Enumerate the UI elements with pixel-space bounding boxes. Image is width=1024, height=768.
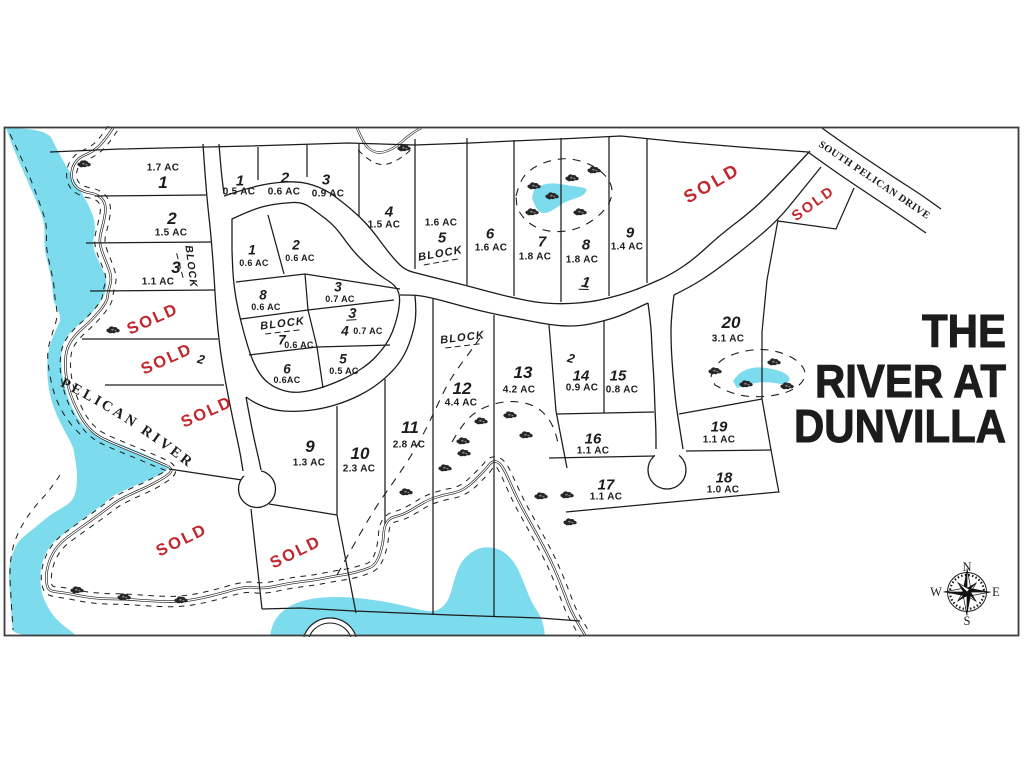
svg-text:1.6 AC: 1.6 AC xyxy=(425,218,458,229)
svg-text:1: 1 xyxy=(248,243,256,258)
svg-text:0.6 AC: 0.6 AC xyxy=(285,253,315,263)
svg-text:1.1 AC: 1.1 AC xyxy=(703,435,736,446)
svg-text:1.6 AC: 1.6 AC xyxy=(475,243,508,254)
svg-text:6: 6 xyxy=(486,225,495,242)
svg-text:8: 8 xyxy=(259,288,267,303)
svg-text:1.3 AC: 1.3 AC xyxy=(293,458,326,469)
svg-text:1: 1 xyxy=(158,173,167,192)
svg-text:4: 4 xyxy=(340,324,349,339)
svg-text:5: 5 xyxy=(339,352,347,367)
svg-text:2: 2 xyxy=(291,238,300,253)
svg-text:W: W xyxy=(930,585,942,599)
svg-text:2.3 AC: 2.3 AC xyxy=(343,464,376,475)
svg-text:1.5 AC: 1.5 AC xyxy=(368,220,401,231)
svg-text:1.1 AC: 1.1 AC xyxy=(577,446,610,457)
svg-text:11: 11 xyxy=(401,418,419,437)
svg-text:0.6 AC: 0.6 AC xyxy=(268,187,301,198)
svg-text:7: 7 xyxy=(538,233,547,250)
svg-text:0.5 AC: 0.5 AC xyxy=(223,187,256,198)
svg-text:3: 3 xyxy=(322,171,331,188)
svg-text:1.4 AC: 1.4 AC xyxy=(611,242,644,253)
svg-text:0.8 AC: 0.8 AC xyxy=(606,385,639,396)
svg-text:19: 19 xyxy=(711,418,728,435)
svg-text:1.0 AC: 1.0 AC xyxy=(707,485,740,496)
svg-text:8: 8 xyxy=(582,236,591,253)
svg-text:4: 4 xyxy=(384,203,394,220)
svg-text:1.5 AC: 1.5 AC xyxy=(155,228,188,239)
svg-text:0.5 AC: 0.5 AC xyxy=(329,366,359,376)
svg-text:2: 2 xyxy=(166,209,177,228)
svg-text:12: 12 xyxy=(453,379,472,398)
svg-text:1.8 AC: 1.8 AC xyxy=(519,252,552,263)
svg-text:20: 20 xyxy=(721,313,741,332)
svg-text:15: 15 xyxy=(610,367,627,384)
svg-text:1.8 AC: 1.8 AC xyxy=(566,255,599,266)
svg-text:1.7 AC: 1.7 AC xyxy=(147,163,180,174)
svg-text:N: N xyxy=(962,560,971,574)
svg-text:9: 9 xyxy=(626,224,635,241)
svg-text:0.6 AC: 0.6 AC xyxy=(251,302,281,312)
svg-text:DUNVILLA: DUNVILLA xyxy=(794,400,1006,452)
svg-text:S: S xyxy=(964,614,971,628)
svg-text:3: 3 xyxy=(334,280,342,295)
svg-text:E: E xyxy=(992,585,1000,599)
svg-text:2: 2 xyxy=(280,169,290,186)
svg-text:0.6 AC: 0.6 AC xyxy=(239,258,269,268)
svg-text:0.9 AC: 0.9 AC xyxy=(312,189,345,200)
svg-text:10: 10 xyxy=(351,444,370,463)
svg-text:0.9 AC: 0.9 AC xyxy=(566,383,599,394)
svg-text:5: 5 xyxy=(438,229,447,246)
svg-text:1.1 AC: 1.1 AC xyxy=(142,277,175,288)
svg-text:9: 9 xyxy=(305,437,315,456)
svg-text:2.8 AC: 2.8 AC xyxy=(393,440,426,451)
svg-text:3: 3 xyxy=(171,258,181,277)
svg-text:0.6AC: 0.6AC xyxy=(273,375,300,385)
svg-text:13: 13 xyxy=(514,363,533,382)
svg-text:1.1 AC: 1.1 AC xyxy=(590,492,623,503)
svg-text:4.4 AC: 4.4 AC xyxy=(445,398,478,409)
svg-text:THE: THE xyxy=(922,305,1006,357)
svg-text:3.1 AC: 3.1 AC xyxy=(712,334,745,345)
svg-text:0.7 AC: 0.7 AC xyxy=(325,294,355,304)
svg-text:0.7 AC: 0.7 AC xyxy=(353,326,383,336)
svg-text:0.6 AC: 0.6 AC xyxy=(284,340,314,350)
svg-text:3: 3 xyxy=(348,305,357,322)
svg-text:4.2 AC: 4.2 AC xyxy=(503,385,536,396)
